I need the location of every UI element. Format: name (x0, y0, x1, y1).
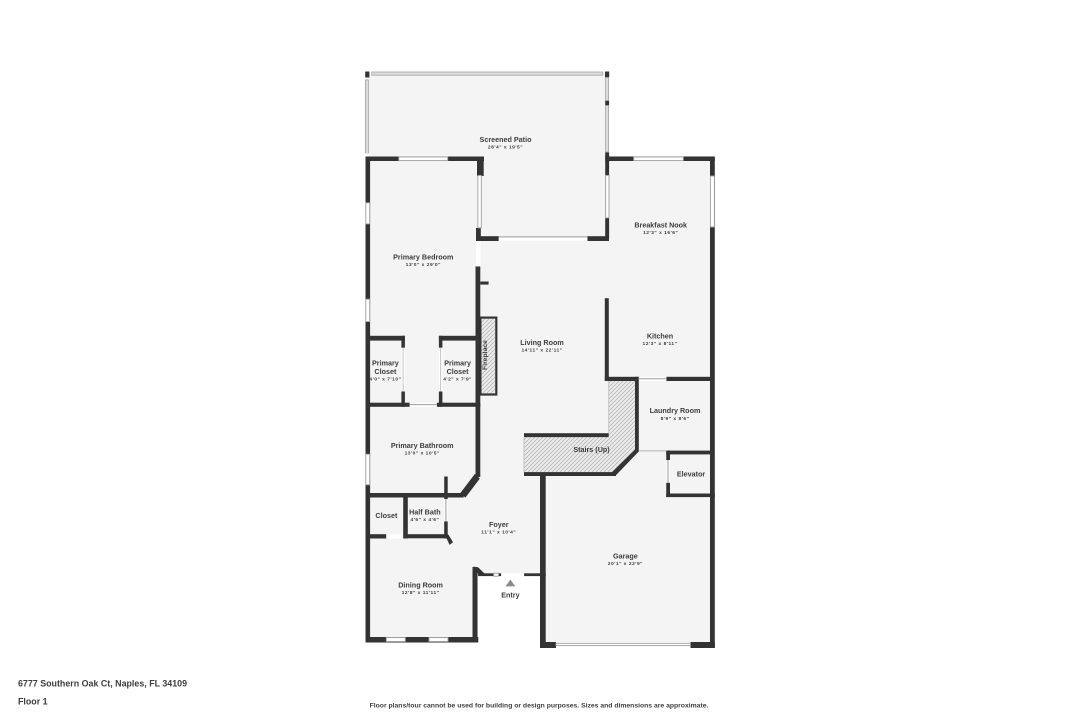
svg-text:8'9" x 8'6": 8'9" x 8'6" (661, 416, 690, 422)
svg-text:6777 Southern Oak Ct, Naples,: 6777 Southern Oak Ct, Naples, FL 34109 (18, 679, 187, 689)
svg-text:11'1" x 10'4": 11'1" x 10'4" (481, 530, 516, 536)
svg-text:Closet: Closet (447, 367, 470, 376)
svg-text:12'3" x 8'11": 12'3" x 8'11" (643, 341, 678, 347)
svg-text:Dining Room: Dining Room (398, 580, 443, 589)
svg-text:Kitchen: Kitchen (647, 331, 673, 340)
svg-text:12'3" x 16'6": 12'3" x 16'6" (643, 230, 678, 236)
svg-text:4'2" x 7'9": 4'2" x 7'9" (443, 376, 472, 382)
svg-text:Entry: Entry (501, 590, 519, 599)
svg-text:Primary Bathroom: Primary Bathroom (391, 441, 454, 450)
svg-text:Primary Bedroom: Primary Bedroom (393, 252, 453, 261)
svg-text:20'1" x 22'9": 20'1" x 22'9" (608, 561, 643, 567)
svg-text:Closet: Closet (375, 511, 398, 520)
svg-text:12'8" x 11'11": 12'8" x 11'11" (402, 590, 440, 596)
svg-text:Garage: Garage (613, 551, 638, 560)
svg-text:Foyer: Foyer (489, 520, 509, 529)
svg-text:4'0" x 7'10": 4'0" x 7'10" (369, 376, 401, 382)
svg-text:Fireplace: Fireplace (482, 340, 489, 370)
svg-text:Floor 1: Floor 1 (18, 697, 48, 707)
svg-text:Elevator: Elevator (677, 470, 706, 479)
svg-text:Living Room: Living Room (520, 338, 564, 347)
svg-text:Breakfast Nook: Breakfast Nook (634, 221, 687, 230)
svg-text:13'0" x 10'5": 13'0" x 10'5" (405, 451, 440, 457)
svg-text:Laundry Room: Laundry Room (650, 406, 701, 415)
svg-text:Stairs (Up): Stairs (Up) (573, 445, 610, 454)
svg-text:Floor plans/tour cannot be use: Floor plans/tour cannot be used for buil… (370, 703, 709, 710)
svg-text:Screened Patio: Screened Patio (480, 135, 533, 144)
svg-text:Closet: Closet (374, 367, 397, 376)
svg-text:Half Bath: Half Bath (409, 507, 441, 516)
svg-text:28'4" x 19'5": 28'4" x 19'5" (488, 145, 523, 151)
svg-text:4'6" x 4'6": 4'6" x 4'6" (411, 517, 440, 523)
svg-text:13'0" x 29'0": 13'0" x 29'0" (406, 262, 441, 268)
svg-text:14'11" x 22'11": 14'11" x 22'11" (521, 348, 562, 354)
